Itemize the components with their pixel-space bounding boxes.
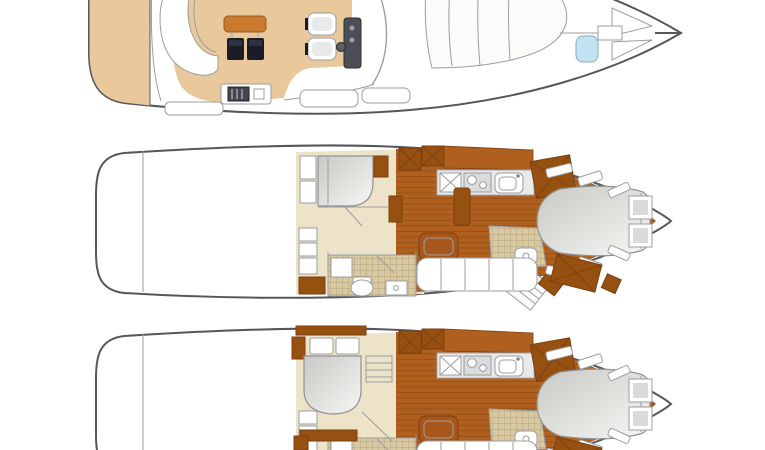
steering-wheel <box>337 43 346 52</box>
cabin-header-cabinet <box>296 326 366 335</box>
lower-deck-plan-a <box>96 145 671 310</box>
yacht-floorplan-diagram <box>0 0 765 450</box>
guest-bed <box>304 356 361 414</box>
foredeck-hatch <box>576 36 598 62</box>
floorplan-canvas <box>0 0 765 450</box>
pillow <box>310 338 333 354</box>
flybridge-table <box>224 16 266 32</box>
lower-deck-common <box>96 328 671 450</box>
lower-deck-plan-b <box>96 326 671 450</box>
cabin-cabinet <box>292 337 305 359</box>
cabin-locker <box>300 181 316 203</box>
pillow <box>336 338 359 354</box>
cabin-locker <box>300 156 316 179</box>
flybridge-deck-plan <box>89 0 681 115</box>
wet-bar-grill <box>221 84 271 104</box>
salon-side-seat <box>454 188 470 225</box>
dresser <box>300 430 357 441</box>
guest-bed <box>318 156 373 206</box>
cabin-cabinet <box>374 156 388 177</box>
cabin-cabinet <box>389 196 402 222</box>
cabin-cabinet <box>294 436 308 450</box>
